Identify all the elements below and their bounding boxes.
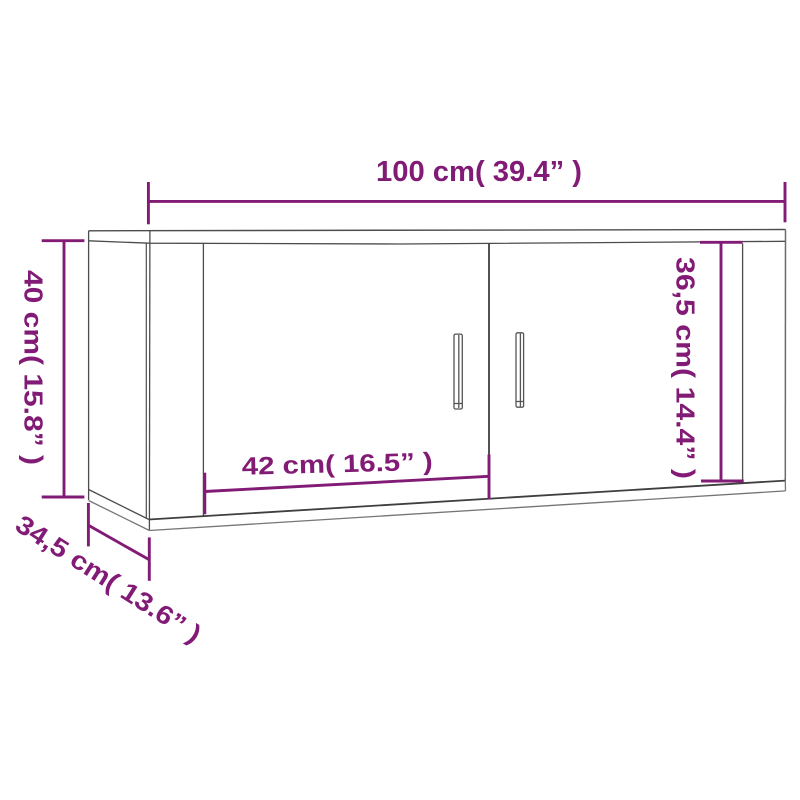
svg-text:42 cm( 16.5” ): 42 cm( 16.5” ) <box>241 448 433 481</box>
svg-text:100 cm( 39.4” ): 100 cm( 39.4” ) <box>376 156 582 188</box>
svg-text:36,5 cm( 14.4” ): 36,5 cm( 14.4” ) <box>671 257 701 479</box>
svg-text:40 cm( 15.8” ): 40 cm( 15.8” ) <box>19 270 49 465</box>
